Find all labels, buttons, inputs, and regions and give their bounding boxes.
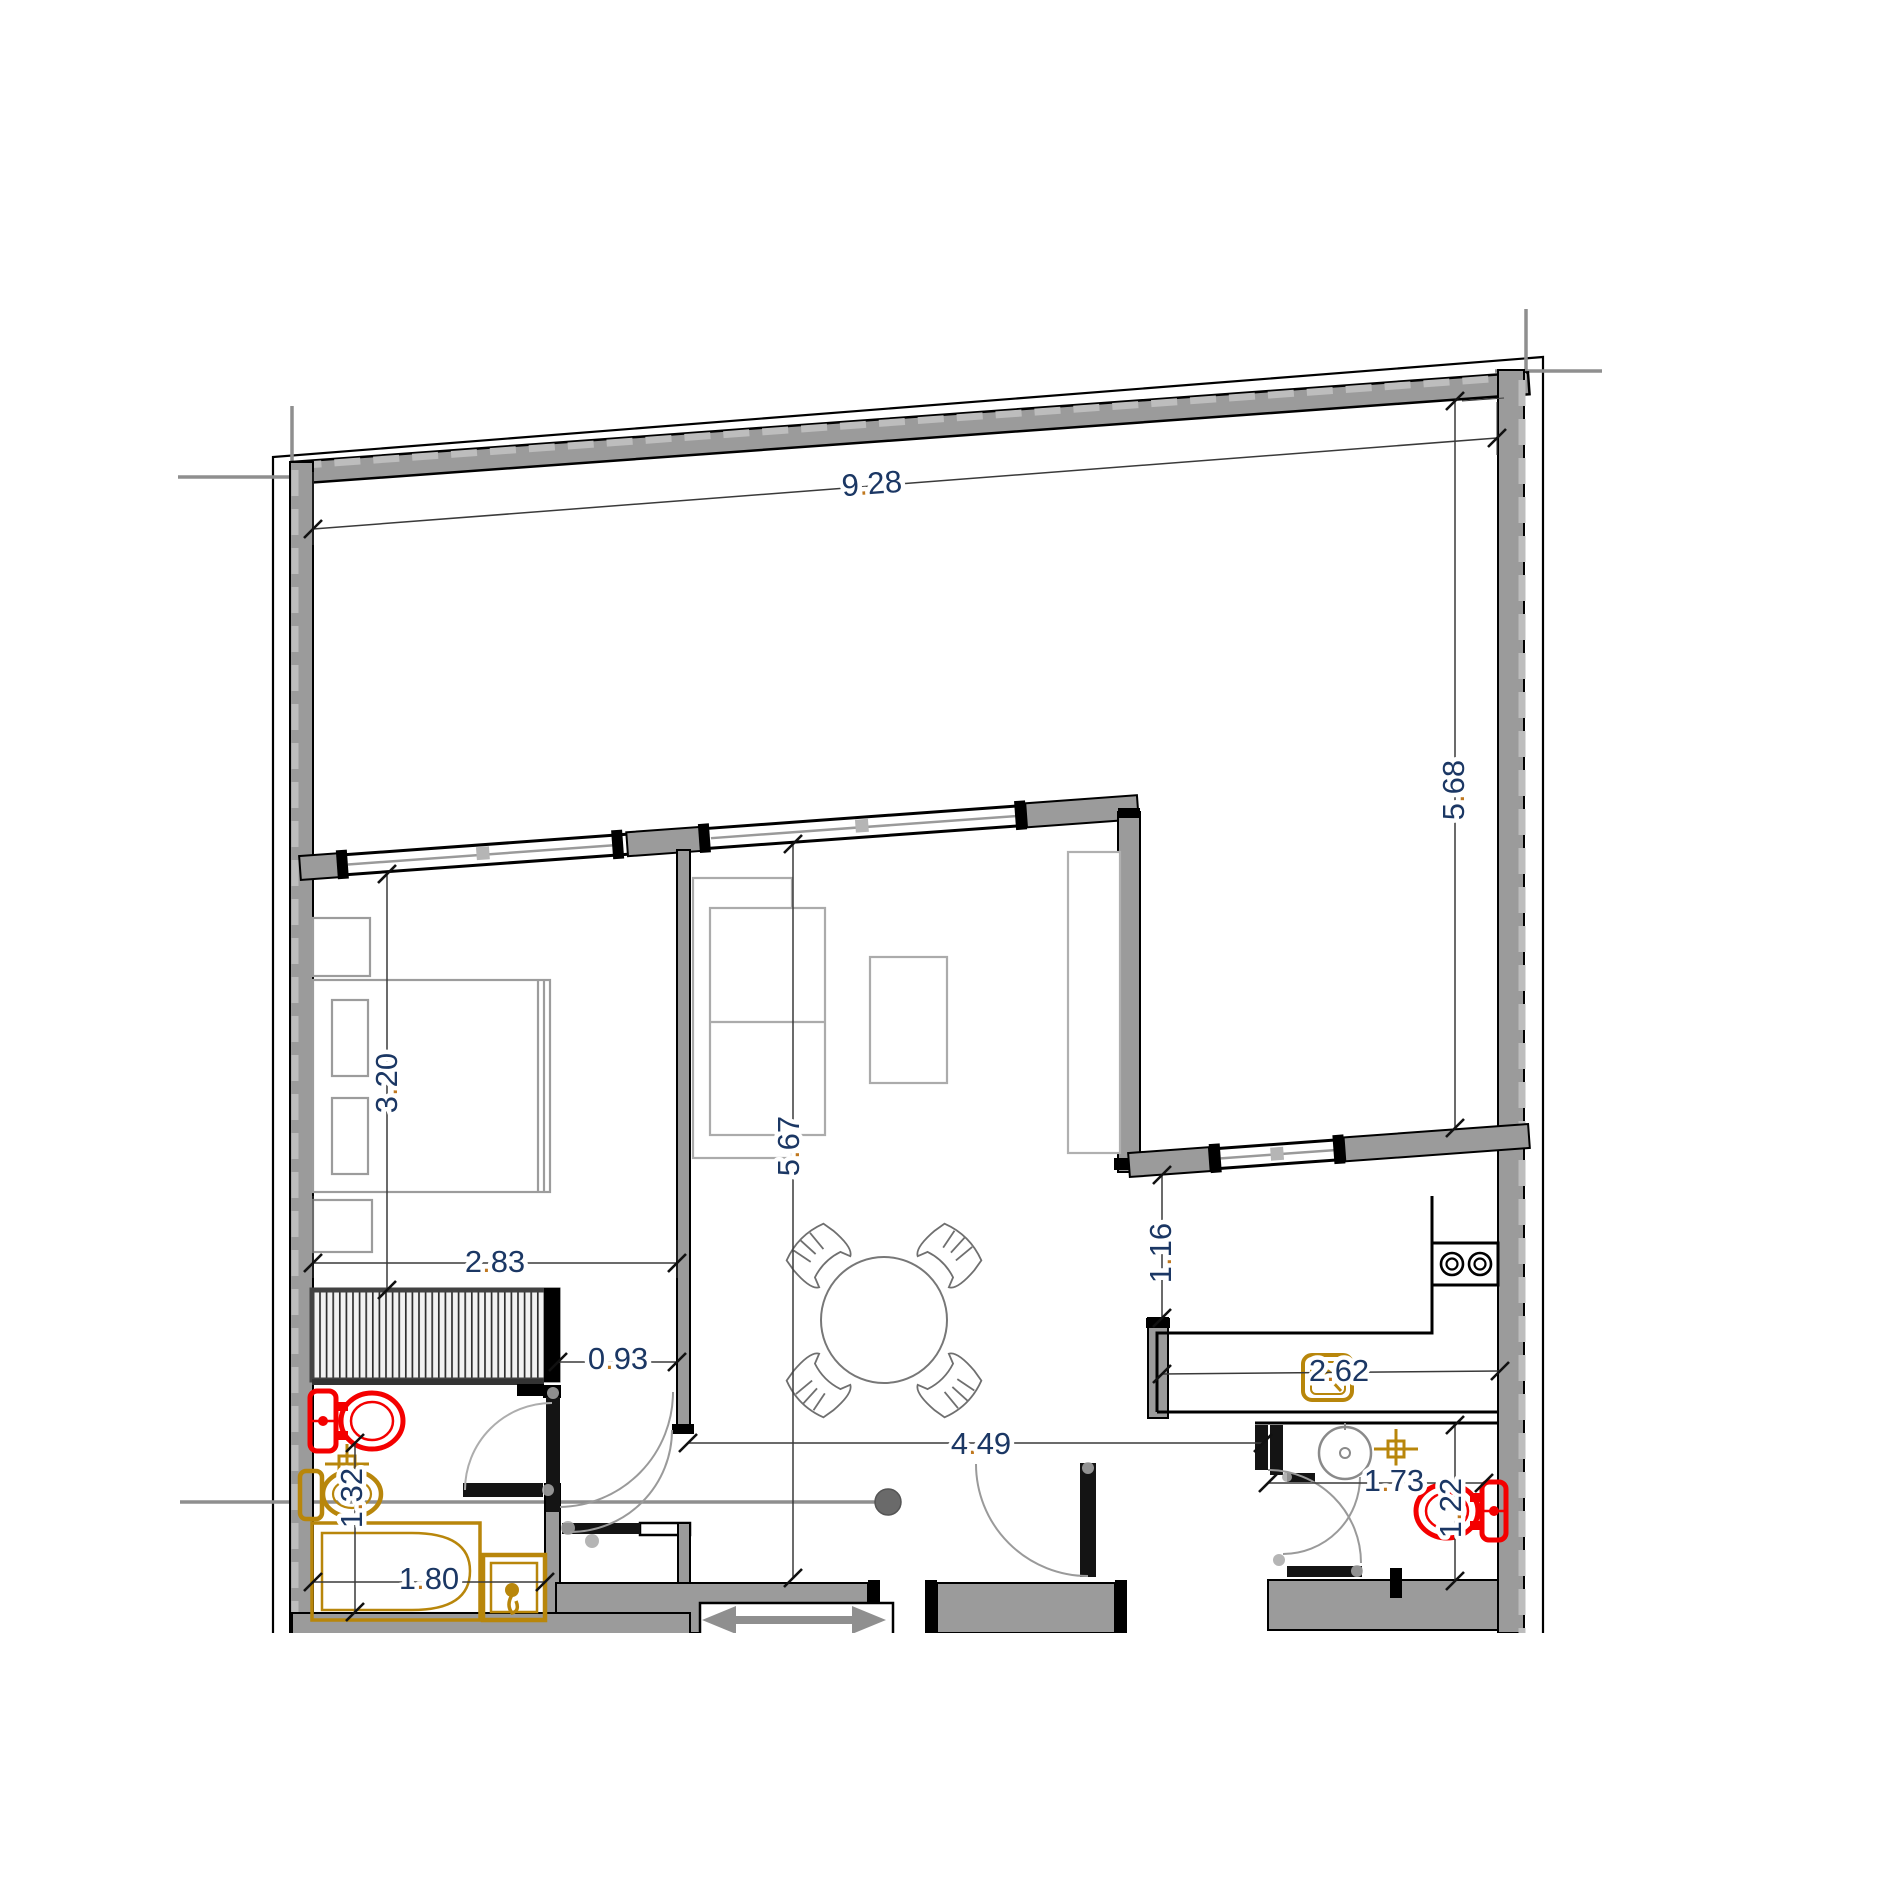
door-bathroom-left (463, 1403, 554, 1497)
window-mullion (855, 819, 869, 833)
wardrobe (312, 1288, 560, 1396)
door-bathroom-right (1268, 1470, 1363, 1577)
dim-label: 1.16 (1143, 1223, 1178, 1283)
nightstand (313, 1200, 372, 1252)
dining-table (821, 1257, 947, 1383)
stairwell-below (700, 1603, 893, 1641)
dim-label: 1.32 (334, 1468, 369, 1528)
window-wall-north (299, 792, 1139, 882)
living-window (698, 800, 1027, 853)
dining-set (781, 1218, 986, 1422)
floor-plan-drawing: 9.28 5.68 3.20 2.83 0.93 (0, 0, 1884, 1884)
exterior-wall-top (291, 372, 1529, 484)
exterior-wall-left (290, 462, 313, 1633)
pillow (332, 1000, 368, 1076)
dim-label: 2.62 (1309, 1353, 1369, 1388)
dim-label: 3.20 (369, 1053, 404, 1113)
nightstand (313, 918, 370, 976)
dim-label: 1.22 (1433, 1478, 1468, 1538)
survey-crosshair-top-left (178, 406, 298, 560)
coffee-table (870, 957, 947, 1083)
door-bedroom (546, 1387, 673, 1512)
dimension-hall-width: 4.49 (679, 1426, 1272, 1461)
bedroom-window (336, 829, 628, 879)
window-mullion (1270, 1147, 1284, 1161)
dimension-kitchen-recess: 1.16 (1143, 1166, 1178, 1327)
section-marker (875, 1489, 901, 1515)
cooktop (1432, 1243, 1498, 1285)
wall-bottom-bathroom-right (1268, 1568, 1498, 1630)
tv-cabinet (1068, 852, 1120, 1153)
dimension-bedroom-door: 0.93 (549, 1341, 686, 1376)
kitchen-window (1209, 1134, 1346, 1173)
window-wall-kitchen (1128, 1121, 1530, 1179)
door-hall (976, 1462, 1096, 1577)
dim-label: 4.49 (951, 1426, 1011, 1461)
bed (313, 980, 550, 1192)
pillow (332, 1098, 368, 1174)
dimension-bedroom-length: 3.20 (369, 865, 404, 1299)
kitchen-counter (1157, 1196, 1498, 1423)
dim-label: 1.80 (399, 1561, 459, 1596)
dim-label: 0.93 (588, 1341, 648, 1376)
dimension-terrace-depth: 5.68 (1436, 392, 1504, 1137)
dim-label: 5.68 (1436, 760, 1471, 820)
dimension-bath-right-length: 1.22 (1433, 1416, 1468, 1590)
door-kitchen (1282, 1472, 1360, 1554)
wall-bedroom-living (672, 850, 694, 1434)
dim-label: 5.67 (771, 1116, 806, 1176)
dim-label: 1.73 (1364, 1463, 1424, 1498)
exterior-wall-right (1498, 370, 1524, 1633)
wall-closet (640, 1523, 690, 1585)
window-mullion (476, 846, 490, 860)
washbasin-unit-left (483, 1555, 545, 1620)
dimension-kitchen-width: 2.62 (1153, 1353, 1509, 1388)
survey-crosshair-top-right (1495, 309, 1602, 373)
floor-plan-page: 9.28 5.68 3.20 2.83 0.93 (0, 0, 1884, 1884)
dim-label: 9.28 (840, 464, 903, 503)
dim-label: 2.83 (465, 1244, 525, 1279)
